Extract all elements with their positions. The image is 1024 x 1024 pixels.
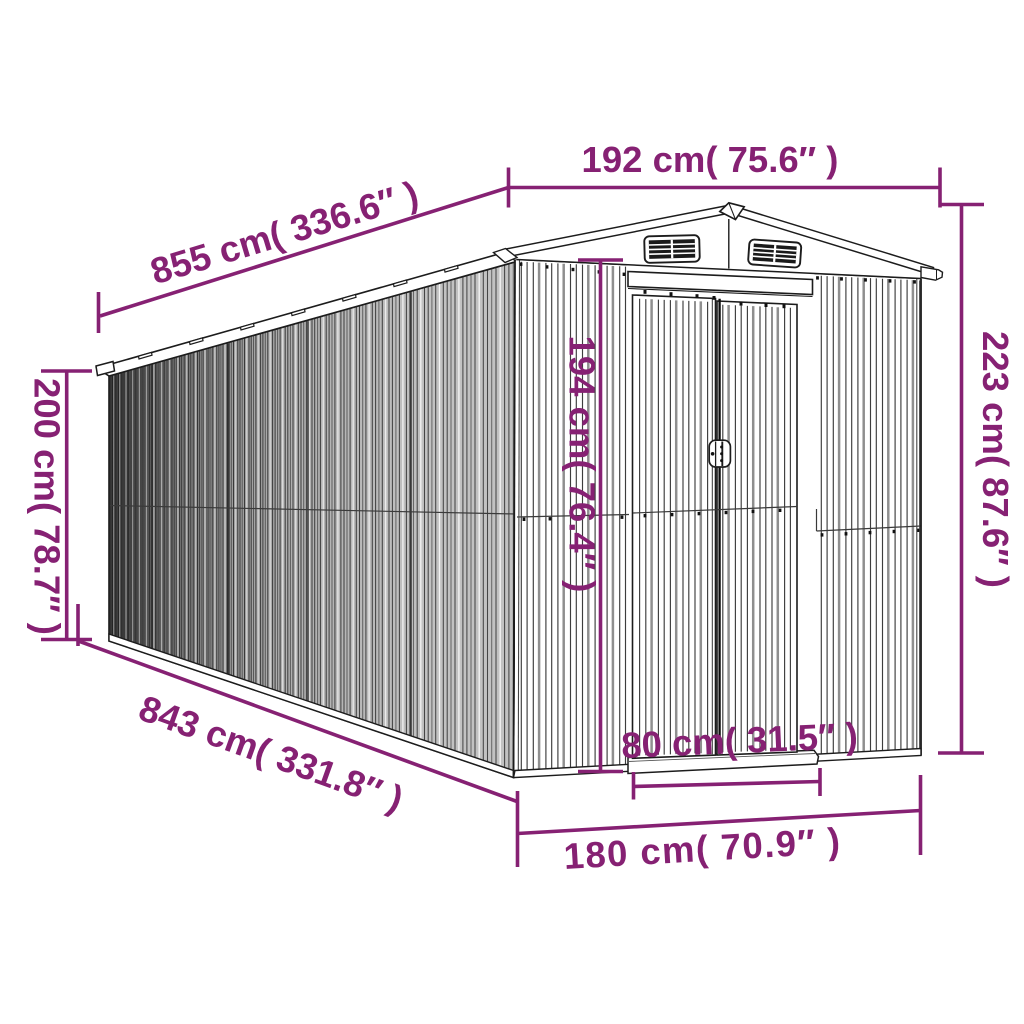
svg-text:194 cm( 76.4″ ): 194 cm( 76.4″ ) bbox=[562, 336, 603, 593]
svg-text:192 cm( 75.6″ ): 192 cm( 75.6″ ) bbox=[582, 139, 839, 180]
svg-text:223 cm( 87.6″ ): 223 cm( 87.6″ ) bbox=[975, 331, 1016, 588]
svg-text:200 cm( 78.7″ ): 200 cm( 78.7″ ) bbox=[27, 378, 68, 635]
